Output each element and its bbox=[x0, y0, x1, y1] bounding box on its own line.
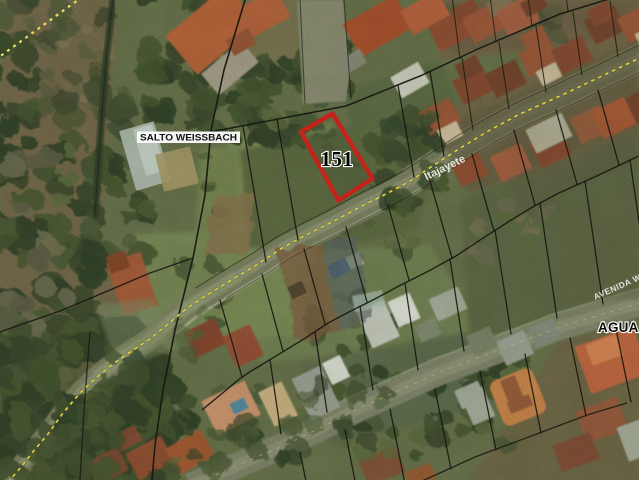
svg-text:SALTO WEISSBACH: SALTO WEISSBACH bbox=[140, 133, 237, 143]
svg-text:AGUA VERDE: AGUA VERDE bbox=[598, 320, 639, 335]
svg-text:151: 151 bbox=[321, 147, 354, 171]
